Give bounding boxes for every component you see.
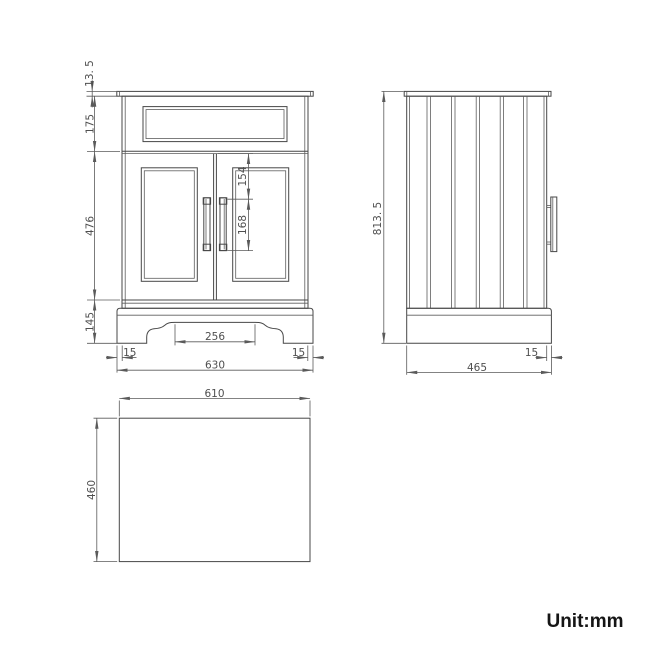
- top-dim-depth: 460: [86, 418, 117, 561]
- side-dim-overall-height: 813. 5: [372, 91, 406, 343]
- front-view: [117, 91, 313, 343]
- side-counter-top: [404, 91, 551, 96]
- front-dim-height-chain: 175 476 145: [85, 96, 121, 343]
- side-door-handle: [547, 197, 557, 252]
- dim-label-overall-height: 813. 5: [372, 202, 384, 235]
- top-view-outline: [119, 418, 310, 561]
- front-counter-top: [117, 91, 313, 96]
- unit-label: Unit:mm: [546, 611, 623, 632]
- technical-drawing-page: 13. 5 175 476 145 154 168: [0, 0, 650, 650]
- side-dim-front-overhang: 15: [525, 346, 563, 362]
- dim-label-handle-length: 168: [237, 215, 249, 235]
- front-dim-overall-width: 630: [117, 360, 313, 372]
- side-plinth: [407, 308, 552, 343]
- dim-label-right-overhang: 15: [292, 347, 305, 359]
- front-left-door-handle: [203, 198, 210, 251]
- front-dim-counter-thickness: 13. 5: [84, 60, 118, 107]
- front-dim-left-overhang: 15: [106, 346, 137, 373]
- dim-label-overall-width: 630: [205, 360, 225, 372]
- dim-label-counter-thickness: 13. 5: [84, 60, 96, 87]
- side-view: [404, 91, 557, 343]
- front-right-door: [216, 154, 288, 300]
- front-left-door: [141, 154, 213, 300]
- side-beadboard-panel-grooves: [427, 96, 527, 308]
- side-cabinet-body: [407, 96, 547, 308]
- dim-label-plinth-height: 145: [85, 312, 97, 332]
- dim-label-upper-section-height: 175: [85, 114, 97, 134]
- front-drawer-panel: [143, 107, 287, 142]
- front-cabinet-body: [122, 96, 308, 308]
- top-view: 610 460: [86, 388, 310, 562]
- side-dimensions: 813. 5 15 465: [372, 91, 563, 374]
- dim-label-handle-top-offset: 154: [237, 166, 249, 186]
- dim-label-top-width: 610: [204, 388, 224, 400]
- dim-label-top-depth: 460: [86, 480, 98, 500]
- top-dim-width: 610: [119, 388, 310, 417]
- front-dim-right-overhang: 15: [292, 346, 324, 373]
- front-right-door-handle: [219, 198, 226, 251]
- dim-label-left-overhang: 15: [123, 347, 136, 359]
- dim-label-cutout-width: 256: [205, 331, 225, 343]
- cabinet-dimension-drawing: 13. 5 175 476 145 154 168: [0, 0, 650, 650]
- dim-label-door-section-height: 476: [85, 216, 97, 236]
- front-dim-cutout-width: 256: [175, 324, 255, 345]
- dim-label-overall-depth: 465: [467, 362, 487, 374]
- dim-label-front-overhang: 15: [525, 347, 538, 359]
